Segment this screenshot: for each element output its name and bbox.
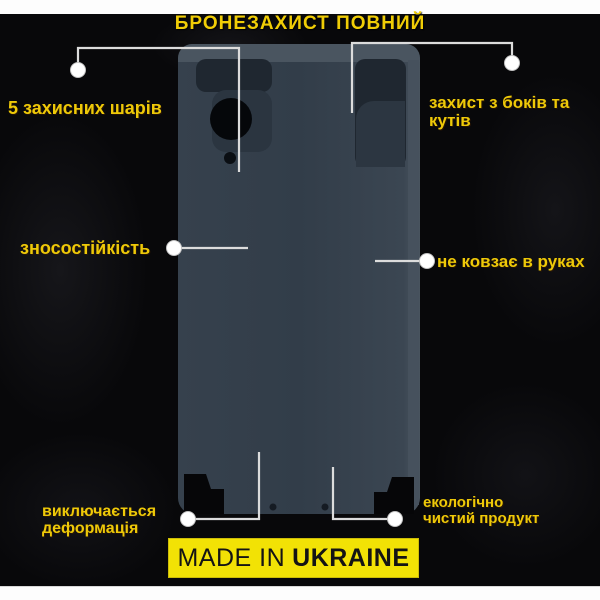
top-right-inner-flap: [356, 101, 405, 167]
bottom-dot: [322, 504, 329, 511]
callout-dot: [505, 56, 520, 71]
product-infographic: БРОНЕЗАХИСТ ПОВНИЙ 5 захисних шарів захи…: [0, 0, 600, 600]
callout-dot: [420, 254, 435, 269]
callout-dot: [181, 512, 196, 527]
page-title: БРОНЕЗАХИСТ ПОВНИЙ: [0, 13, 600, 35]
badge-country: UKRAINE: [292, 544, 409, 573]
callout-label-eco: екологічно чистий продукт: [423, 495, 539, 527]
flash-cutout: [224, 152, 236, 164]
callout-label-layers: 5 захисних шарів: [8, 99, 162, 118]
callout-dot: [71, 63, 86, 78]
bottom-dot: [270, 504, 277, 511]
badge-prefix: MADE IN: [177, 544, 285, 573]
callout-label-grip: не ковзає в руках: [437, 253, 585, 271]
callout-label-deform: виключається деформація: [42, 504, 156, 538]
film-right-edge: [408, 60, 419, 505]
callout-dot: [167, 241, 182, 256]
camera-cutout: [210, 98, 252, 140]
callout-label-sides: захист з боків та кутів: [429, 94, 589, 130]
made-in-ukraine-badge: MADE IN UKRAINE: [168, 538, 419, 578]
callout-label-wear: зносостійкість: [20, 239, 150, 258]
callout-dot: [388, 512, 403, 527]
top-left-cutout: [196, 59, 272, 92]
